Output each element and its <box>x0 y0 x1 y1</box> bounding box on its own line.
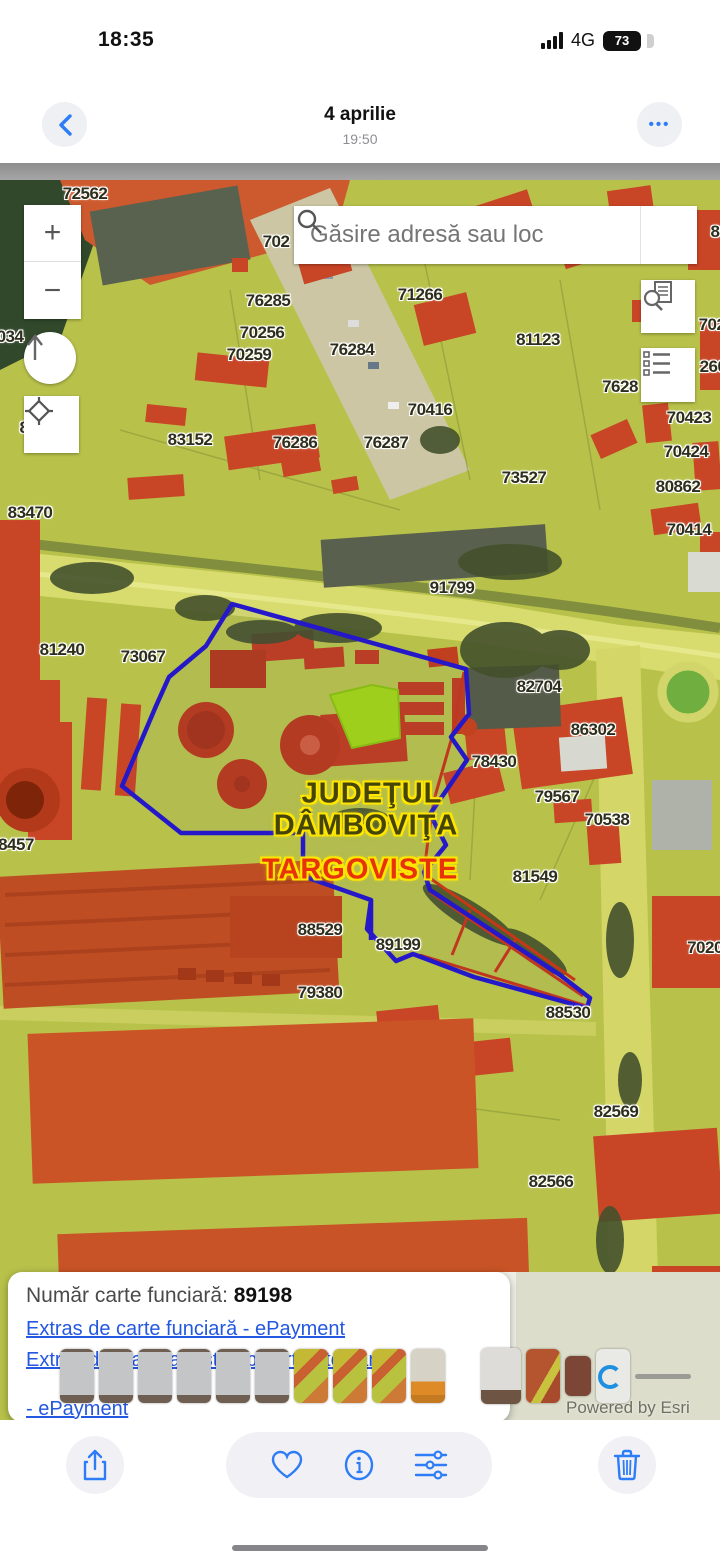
parcel-label-88530: 88530 <box>546 1003 591 1023</box>
parcel-label-260: 260 <box>700 357 720 377</box>
parcel-label-70416: 70416 <box>408 400 453 420</box>
parcel-label-8: 8 <box>711 222 720 242</box>
photo-thumbnail-10 <box>450 1376 476 1377</box>
parcel-label-89199: 89199 <box>376 935 421 955</box>
parcel-label-81549: 81549 <box>513 867 558 887</box>
parcel-label-79380: 79380 <box>298 983 343 1003</box>
extract-link-1[interactable]: Extras de carte funciară - ePayment <box>26 1318 492 1341</box>
search-button[interactable] <box>640 206 697 264</box>
up-arrow-icon <box>24 332 46 362</box>
search-icon <box>294 206 324 236</box>
photos-toolbar <box>0 1420 720 1561</box>
land-register-number: Număr carte funciară: 89198 <box>26 1284 492 1308</box>
county-label-line2: DÂMBOVIŢA <box>274 810 459 843</box>
parcel-label-70423: 70423 <box>667 408 712 428</box>
legend-button[interactable] <box>641 348 695 402</box>
trash-icon <box>613 1449 641 1481</box>
zoom-controls: + − <box>24 205 81 319</box>
photo-thumbnail-6[interactable] <box>294 1349 328 1403</box>
parcel-label-70256: 70256 <box>240 323 285 343</box>
favorite-button[interactable] <box>270 1450 304 1480</box>
status-bar: 18:35 4G 73 <box>0 0 720 100</box>
zoom-out-button[interactable]: − <box>24 262 81 319</box>
parcel-label-88529: 88529 <box>298 920 343 940</box>
iphone-photos-screen: 18:35 4G 73 4 aprilie 19:50 ••• <box>0 0 720 1561</box>
photo-thumbnail-4[interactable] <box>216 1349 250 1403</box>
parcel-label-91799: 91799 <box>430 578 475 598</box>
parcel-label-81123: 81123 <box>516 330 560 350</box>
parcel-label-70414: 70414 <box>667 520 712 540</box>
parcel-label-76285: 76285 <box>246 291 291 311</box>
county-label-line1: JUDEŢUL <box>302 778 443 811</box>
parcel-label-81240: 81240 <box>40 640 85 660</box>
photo-thumbnail-5[interactable] <box>255 1349 289 1403</box>
search-input[interactable] <box>294 206 640 264</box>
legend-list-icon <box>641 348 673 380</box>
land-register-label: Număr carte funciară: <box>26 1284 234 1307</box>
parcel-label-73527: 73527 <box>502 468 547 488</box>
locate-button[interactable] <box>24 396 79 453</box>
parcel-label-7020: 7020 <box>687 938 720 958</box>
parcel-label-80862: 80862 <box>656 477 701 497</box>
parcel-label-78430: 78430 <box>472 752 517 772</box>
address-search-bar <box>294 206 697 264</box>
more-options-button[interactable]: ••• <box>637 102 682 147</box>
filmstrip-line[interactable] <box>635 1374 691 1379</box>
north-arrow-button[interactable] <box>24 332 76 384</box>
heart-icon <box>270 1450 304 1480</box>
parcel-label-83152: 83152 <box>168 430 213 450</box>
parcel-label-79567: 79567 <box>535 787 580 807</box>
photo-date-title: 4 aprilie <box>0 104 720 126</box>
parcel-label-86302: 86302 <box>571 720 616 740</box>
network-type: 4G <box>571 30 595 51</box>
parcel-label-83470: 83470 <box>8 503 53 523</box>
photo-thumbnail-13[interactable] <box>565 1356 591 1396</box>
photo-top-separator <box>0 163 720 180</box>
delete-button[interactable] <box>598 1436 656 1494</box>
parcel-label-76284: 76284 <box>330 340 375 360</box>
parcel-label-8457: 8457 <box>0 835 34 855</box>
photo-thumbnail-14[interactable] <box>596 1349 630 1403</box>
photo-thumbnail-1[interactable] <box>99 1349 133 1403</box>
city-label: TARGOVISTE <box>262 854 458 887</box>
identify-document-icon <box>641 280 675 312</box>
map-screenshot[interactable]: 7256270287628571266702567025976284811237… <box>0 180 720 1420</box>
photo-thumbnail-12[interactable] <box>526 1349 560 1403</box>
photo-thumbnail-3[interactable] <box>177 1349 211 1403</box>
zoom-in-button[interactable]: + <box>24 205 81 262</box>
parcel-label-034: 034 <box>0 327 23 347</box>
home-indicator[interactable] <box>232 1545 488 1551</box>
land-register-value: 89198 <box>234 1284 292 1307</box>
info-button[interactable] <box>343 1449 375 1481</box>
parcel-label-70538: 70538 <box>585 810 630 830</box>
photo-filmstrip[interactable] <box>60 1348 691 1404</box>
navigation-bar: 4 aprilie 19:50 ••• <box>0 100 720 163</box>
photo-thumbnail-9[interactable] <box>411 1349 445 1403</box>
photo-thumbnail-2[interactable] <box>138 1349 172 1403</box>
signal-strength-icon <box>541 32 563 49</box>
photo-actions-pill <box>226 1432 492 1498</box>
parcel-label-76287: 76287 <box>364 433 409 453</box>
clock: 18:35 <box>98 28 154 52</box>
photo-thumbnail-8[interactable] <box>372 1349 406 1403</box>
parcel-label-82566: 82566 <box>529 1172 574 1192</box>
photo-thumbnail-0[interactable] <box>60 1349 94 1403</box>
share-icon <box>82 1449 108 1481</box>
parcel-label-702: 702 <box>699 315 720 335</box>
battery-icon: 73 <box>603 31 641 51</box>
battery-tip-icon <box>647 34 654 48</box>
parcel-label-7628: 7628 <box>602 377 638 397</box>
crosshair-icon <box>24 396 54 426</box>
parcel-label-82569: 82569 <box>594 1102 639 1122</box>
parcel-label-70259: 70259 <box>227 345 272 365</box>
info-icon <box>343 1449 375 1481</box>
photo-time-subtitle: 19:50 <box>0 131 720 147</box>
share-button[interactable] <box>66 1436 124 1494</box>
adjust-button[interactable] <box>414 1449 448 1481</box>
parcel-label-72562: 72562 <box>63 184 108 204</box>
photo-thumbnail-7[interactable] <box>333 1349 367 1403</box>
parcel-label-73067: 73067 <box>121 647 166 667</box>
photo-thumbnail-11[interactable] <box>481 1348 521 1404</box>
parcel-label-82704: 82704 <box>517 677 562 697</box>
parcel-label-70424: 70424 <box>664 442 709 462</box>
parcel-label-76286: 76286 <box>273 433 318 453</box>
identify-tool-button[interactable] <box>641 280 695 333</box>
parcel-label-71266: 71266 <box>398 285 443 305</box>
parcel-label-702: 702 <box>263 232 290 252</box>
sliders-icon <box>414 1449 448 1481</box>
